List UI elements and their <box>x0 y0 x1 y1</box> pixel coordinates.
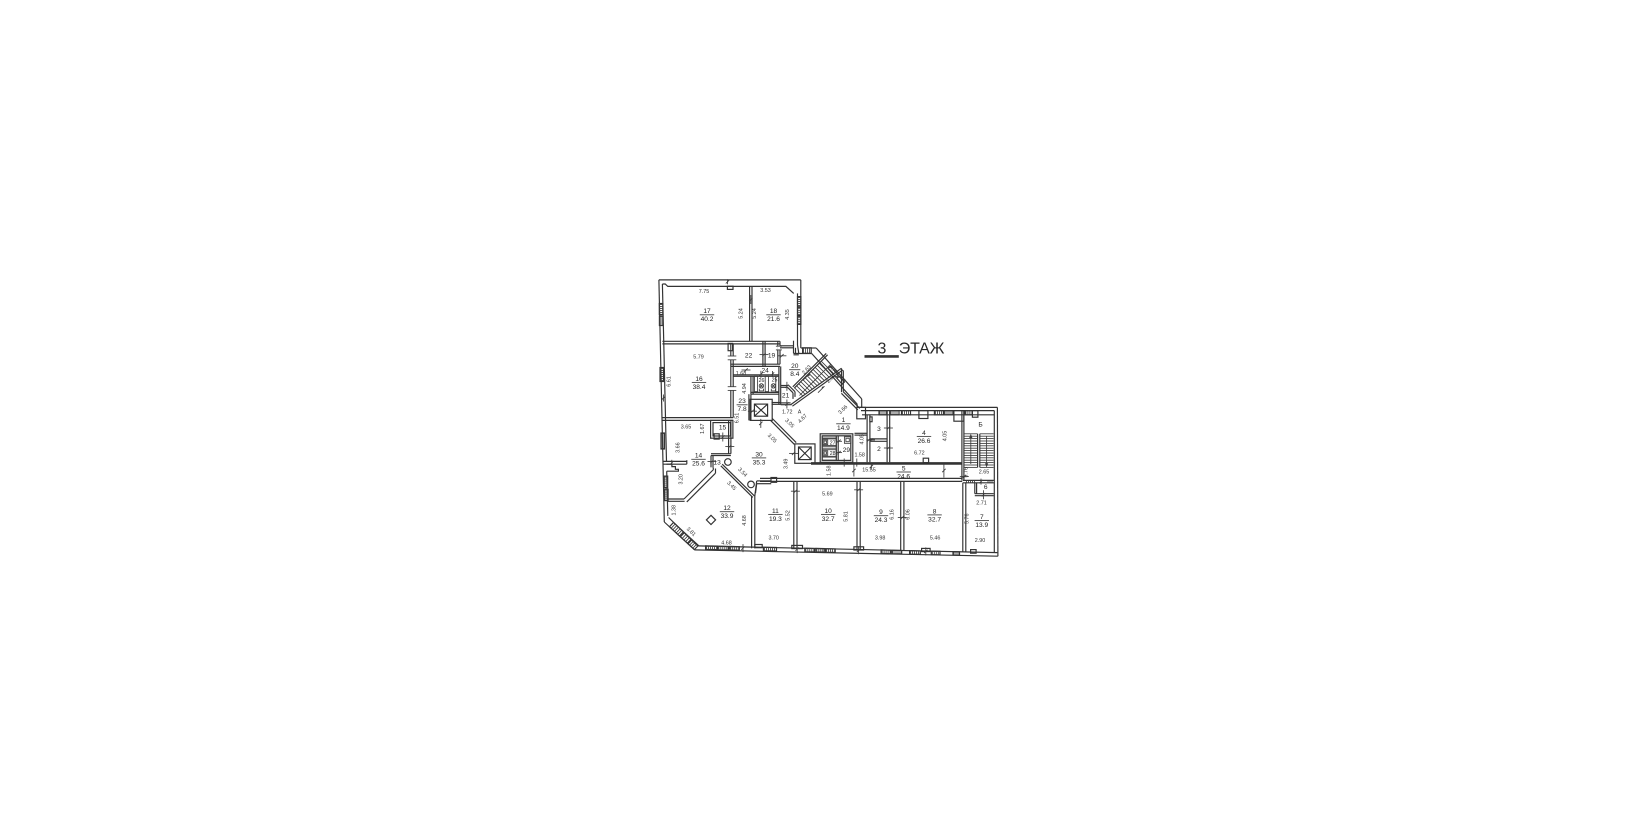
svg-text:4.05: 4.05 <box>860 434 866 445</box>
svg-text:2.71: 2.71 <box>976 501 987 507</box>
svg-text:14: 14 <box>695 453 703 460</box>
svg-text:5.24: 5.24 <box>752 308 758 319</box>
svg-text:5.69: 5.69 <box>822 491 833 497</box>
svg-text:1: 1 <box>842 417 846 424</box>
svg-text:1.67: 1.67 <box>700 424 706 435</box>
svg-text:3.98: 3.98 <box>875 535 886 541</box>
svg-text:3: 3 <box>877 426 881 433</box>
svg-text:2.65: 2.65 <box>979 470 990 476</box>
svg-text:3: 3 <box>877 341 886 358</box>
svg-text:8.4: 8.4 <box>790 371 799 378</box>
svg-text:26.6: 26.6 <box>918 438 931 445</box>
svg-text:18: 18 <box>770 308 778 315</box>
svg-text:14.9: 14.9 <box>837 425 850 432</box>
svg-text:5.81: 5.81 <box>843 511 849 522</box>
svg-text:1.58: 1.58 <box>854 453 865 459</box>
svg-text:22: 22 <box>745 353 753 360</box>
svg-text:23: 23 <box>738 398 746 405</box>
svg-text:28: 28 <box>830 451 836 457</box>
svg-text:38.4: 38.4 <box>693 384 706 391</box>
svg-text:Б: Б <box>978 422 982 429</box>
svg-text:19: 19 <box>768 352 776 359</box>
svg-text:5.79: 5.79 <box>693 354 704 360</box>
svg-text:32.7: 32.7 <box>928 516 941 523</box>
svg-text:30: 30 <box>755 451 763 458</box>
svg-text:26: 26 <box>759 378 765 384</box>
svg-text:4.94: 4.94 <box>742 383 748 394</box>
svg-text:7.75: 7.75 <box>699 289 710 295</box>
svg-text:24.6: 24.6 <box>897 473 910 480</box>
svg-text:6.72: 6.72 <box>914 451 925 457</box>
svg-text:1.68: 1.68 <box>736 371 747 377</box>
svg-text:1.58: 1.58 <box>827 465 833 476</box>
svg-text:5.76: 5.76 <box>965 513 971 524</box>
svg-text:3.66: 3.66 <box>676 442 682 453</box>
svg-text:19.3: 19.3 <box>769 516 782 523</box>
svg-text:17: 17 <box>703 308 711 315</box>
svg-text:5.52: 5.52 <box>786 510 792 521</box>
svg-text:21.6: 21.6 <box>767 316 780 323</box>
svg-text:4.35: 4.35 <box>785 309 791 320</box>
svg-text:11: 11 <box>772 508 779 515</box>
svg-text:24.3: 24.3 <box>875 517 888 524</box>
svg-text:35.3: 35.3 <box>753 459 766 466</box>
svg-text:3.53: 3.53 <box>760 288 771 294</box>
svg-text:4.68: 4.68 <box>721 540 732 546</box>
svg-text:10: 10 <box>825 508 833 515</box>
svg-text:А: А <box>798 410 802 416</box>
svg-text:5.76: 5.76 <box>963 467 969 478</box>
svg-text:6.61: 6.61 <box>667 376 673 387</box>
svg-text:40.2: 40.2 <box>701 316 714 323</box>
svg-text:32.7: 32.7 <box>822 516 835 523</box>
svg-text:1.38: 1.38 <box>672 505 678 516</box>
svg-text:7.8: 7.8 <box>738 406 747 413</box>
svg-text:27: 27 <box>830 440 836 446</box>
svg-text:15: 15 <box>719 425 727 432</box>
svg-text:2: 2 <box>877 446 881 453</box>
svg-text:6.51: 6.51 <box>734 413 740 424</box>
svg-text:29: 29 <box>843 447 851 454</box>
svg-text:5: 5 <box>902 465 906 472</box>
svg-text:21: 21 <box>782 393 790 400</box>
svg-text:5.46: 5.46 <box>930 535 941 541</box>
svg-text:15.55: 15.55 <box>862 467 876 473</box>
svg-text:4.68: 4.68 <box>742 515 748 526</box>
svg-text:5.24: 5.24 <box>739 308 745 319</box>
svg-text:8: 8 <box>933 508 937 515</box>
svg-text:6.06: 6.06 <box>906 509 912 520</box>
svg-text:1.72: 1.72 <box>782 409 793 415</box>
svg-text:3.49: 3.49 <box>783 459 789 470</box>
svg-text:24: 24 <box>762 367 770 374</box>
svg-text:3.70: 3.70 <box>768 535 779 541</box>
svg-text:25: 25 <box>772 378 778 384</box>
svg-text:ЭТАЖ: ЭТАЖ <box>899 341 945 358</box>
svg-text:13: 13 <box>713 459 721 466</box>
svg-text:4.05: 4.05 <box>943 431 949 442</box>
svg-text:9: 9 <box>879 509 883 516</box>
svg-text:13.9: 13.9 <box>975 522 988 529</box>
svg-text:3.65: 3.65 <box>681 424 692 430</box>
svg-text:12: 12 <box>723 505 731 512</box>
svg-text:25.6: 25.6 <box>692 461 705 468</box>
svg-text:2.90: 2.90 <box>975 538 986 544</box>
svg-text:6.16: 6.16 <box>889 509 895 520</box>
svg-text:6: 6 <box>984 484 988 491</box>
svg-text:16: 16 <box>695 376 703 383</box>
svg-text:33.9: 33.9 <box>721 513 734 520</box>
svg-text:3.20: 3.20 <box>678 474 684 485</box>
svg-text:7: 7 <box>980 514 984 521</box>
svg-text:20: 20 <box>791 363 799 370</box>
svg-text:4: 4 <box>922 430 926 437</box>
